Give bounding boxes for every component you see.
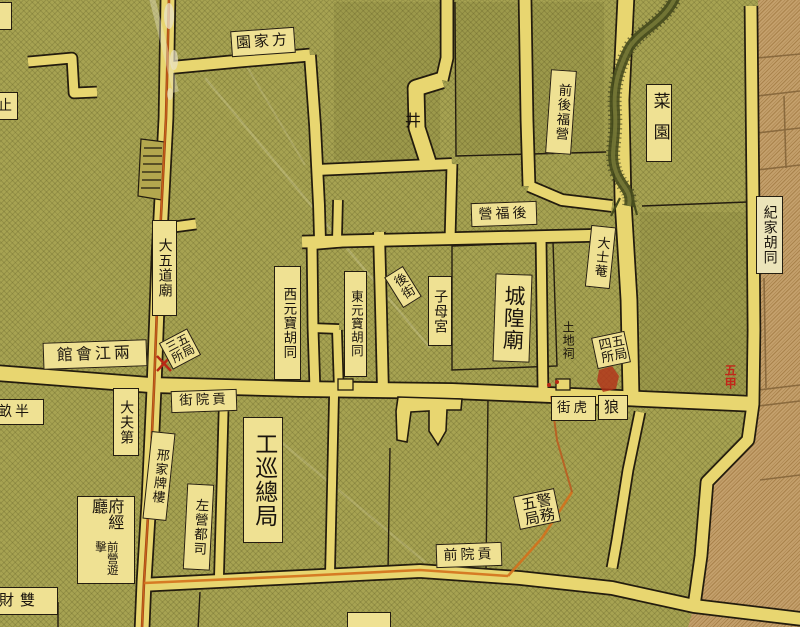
label-hu-jie: 街虎	[551, 396, 596, 421]
label-tudi-ci: 土地祠	[558, 312, 578, 368]
hatched-slope-feature	[138, 139, 165, 200]
label-hou-fuying: 營福後	[471, 201, 538, 227]
label-zimu-gong: 子母宮	[428, 276, 452, 346]
label-xi-yuanbao-hutong: 西元寶胡同	[274, 266, 301, 380]
label-zuoying-dusi: 左營都司	[183, 483, 214, 570]
label-liangjiang-huiguan: 館會江兩	[43, 339, 148, 370]
label-gongyuan-qian: 前院貢	[436, 542, 503, 568]
label-lang: 狼	[598, 395, 628, 420]
label-wujia-red: 五甲	[720, 360, 740, 394]
label-well: 井	[403, 111, 423, 131]
label-fujing-ting-qianying-youji: 府經廳 前營遊擊	[77, 496, 135, 584]
label-chenghuang-miao: 城隍廟	[492, 273, 532, 362]
label-dong-yuanbao-hutong: 東元寶胡同	[344, 271, 367, 377]
label-dawudao-miao: 大五道廟	[152, 220, 177, 316]
label-caiyuan: 菜園	[646, 84, 672, 162]
label-fangjiayuan: 園家方	[230, 27, 296, 57]
label-gongxun-zongju: 工巡總局	[243, 417, 283, 543]
label-banmu: 畝半	[0, 399, 44, 425]
label-partial-bottom	[347, 612, 391, 627]
map-canvas[interactable]: 園家方 井 前後福營 營福後 菜園 紀家胡同 大士菴 大五道廟 西元寶胡同 東元…	[0, 0, 800, 627]
label-gongyuan-jie: 街院貢	[171, 389, 238, 413]
label-partial-top-left	[0, 2, 12, 30]
label-jijia-hutong: 紀家胡同	[756, 196, 783, 274]
label-fujing-ting: 府經廳	[90, 498, 123, 541]
label-zhi-partial: 止	[0, 92, 18, 120]
label-shuangcai: 財雙	[0, 587, 58, 615]
label-qianying-youji: 前營遊擊	[94, 541, 117, 582]
label-dafu-di: 大夫第	[113, 388, 139, 456]
